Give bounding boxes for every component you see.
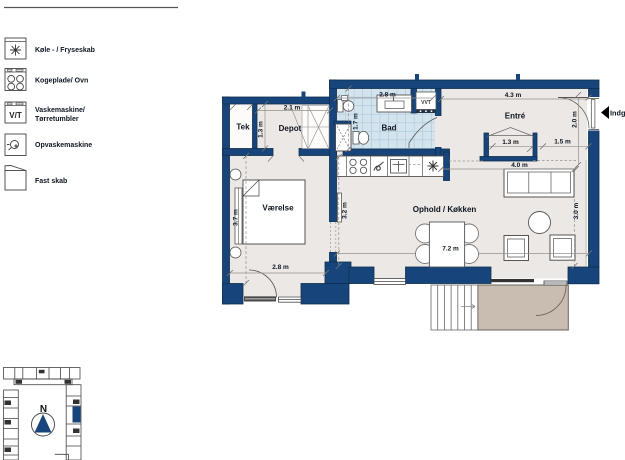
svg-text:Tek: Tek (236, 123, 250, 132)
svg-text:2.8 m: 2.8 m (379, 92, 396, 99)
svg-text:Fast skab: Fast skab (35, 178, 67, 185)
svg-text:3.7 m: 3.7 m (233, 209, 240, 226)
svg-text:1.3 m: 1.3 m (258, 121, 265, 138)
svg-text:VVT: VVT (421, 100, 431, 106)
svg-text:Bad: Bad (381, 124, 396, 133)
svg-text:Vaskemaskine/: Vaskemaskine/ (35, 107, 85, 114)
svg-text:2.8 m: 2.8 m (272, 264, 289, 271)
svg-text:4.0 m: 4.0 m (511, 162, 528, 169)
svg-text:V/T: V/T (9, 111, 22, 120)
svg-text:Køle - / Fryseskab: Køle - / Fryseskab (35, 47, 95, 54)
svg-text:Indg: Indg (610, 109, 625, 118)
svg-text:Tørretumbler: Tørretumbler (35, 116, 79, 123)
svg-text:3.0 m: 3.0 m (573, 202, 580, 219)
svg-text:2.0 m: 2.0 m (572, 111, 579, 128)
svg-text:4.3 m: 4.3 m (505, 92, 522, 99)
svg-text:Opvaskemaskine: Opvaskemaskine (35, 142, 92, 149)
svg-text:1.7 m: 1.7 m (353, 113, 360, 130)
svg-text:Depot: Depot (279, 124, 302, 133)
svg-text:1.5 m: 1.5 m (554, 139, 571, 146)
svg-text:Ophold / Køkken: Ophold / Køkken (413, 205, 477, 214)
svg-text:Værelse: Værelse (262, 204, 294, 213)
svg-text:7.2 m: 7.2 m (442, 246, 459, 253)
svg-text:3.2 m: 3.2 m (342, 202, 349, 219)
svg-text:Entré: Entré (505, 112, 526, 121)
svg-text:1.3 m: 1.3 m (502, 139, 519, 146)
svg-text:2.1 m: 2.1 m (284, 105, 301, 112)
svg-text:Kogeplade/ Ovn: Kogeplade/ Ovn (35, 78, 88, 85)
